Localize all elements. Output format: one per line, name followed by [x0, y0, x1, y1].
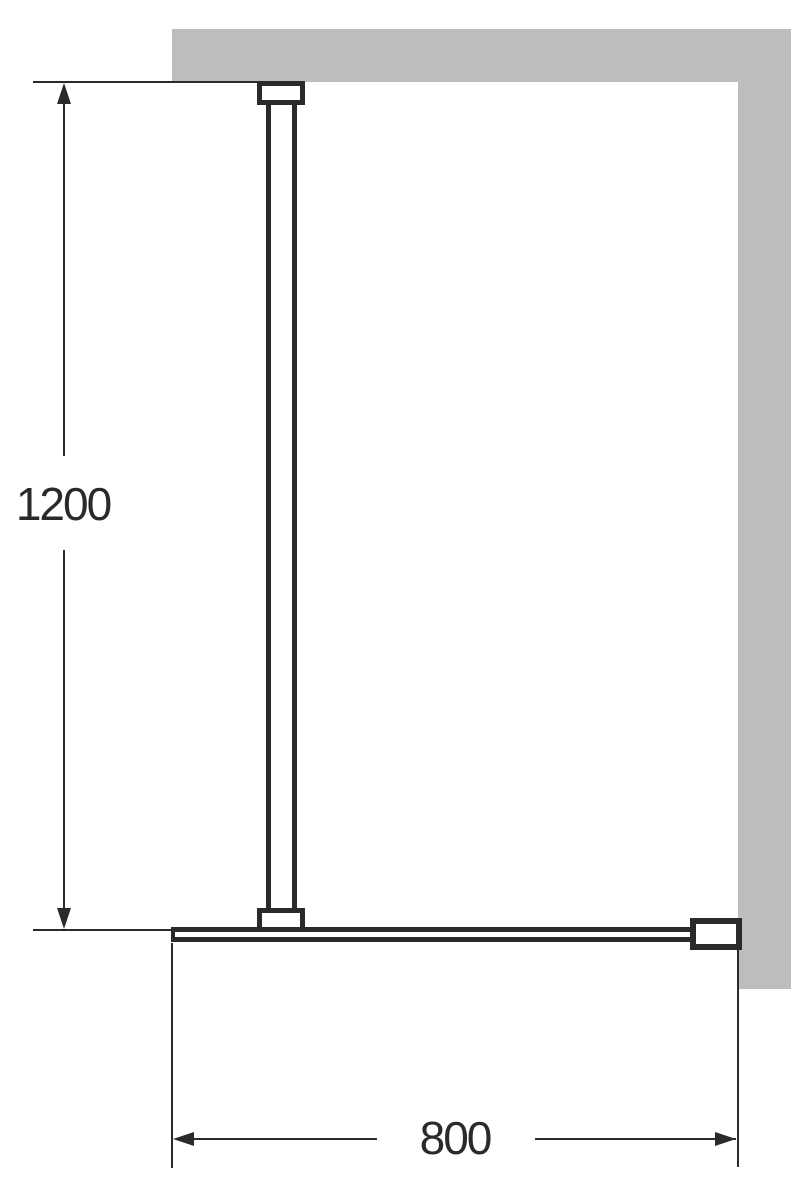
- wall-profile: [690, 918, 742, 950]
- glass-panel: [171, 927, 691, 942]
- arrowhead-up-icon: [57, 83, 71, 104]
- support-bar-wall-bracket: [257, 81, 305, 105]
- support-bar: [266, 104, 297, 910]
- width-dimension-line-right: [535, 1138, 736, 1140]
- width-dimension-label: 800: [417, 1115, 494, 1161]
- arrowhead-right-icon: [715, 1132, 736, 1146]
- height-extension-line-bottom: [33, 929, 171, 931]
- width-extension-line-right: [737, 950, 739, 1167]
- height-dimension-line-upper: [63, 100, 65, 456]
- height-dimension-line-lower: [63, 550, 65, 910]
- wall-top: [172, 29, 791, 82]
- arrowhead-left-icon: [173, 1132, 194, 1146]
- width-dimension-line-left: [176, 1138, 377, 1140]
- height-dimension-label: 1200: [13, 481, 113, 527]
- arrowhead-down-icon: [57, 908, 71, 929]
- drawing-canvas: 1200 800: [0, 0, 811, 1200]
- wall-right: [738, 29, 791, 989]
- support-bar-glass-clamp: [257, 908, 305, 932]
